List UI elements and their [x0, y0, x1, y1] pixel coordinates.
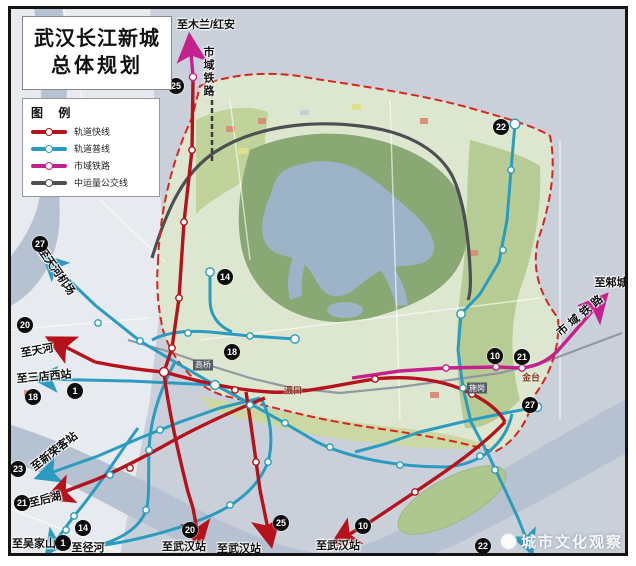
- line-badge-27: 27: [522, 397, 538, 413]
- map-label: 金台: [522, 371, 540, 384]
- line-badge-14: 14: [217, 269, 233, 285]
- map-label: 至武汉站: [162, 538, 206, 554]
- line-badge-20: 20: [17, 317, 33, 333]
- map-label: 至武汉站: [217, 540, 261, 556]
- lake-arm-3: [327, 302, 363, 318]
- line-badge-10: 10: [355, 518, 371, 534]
- map-label: 施岗: [467, 383, 487, 394]
- map-title-box: 武汉长江新城 总体规划: [22, 16, 172, 90]
- legend-item-normal: 轨道普线: [31, 142, 151, 155]
- line-badge-1: 1: [67, 383, 83, 399]
- legend-item-label: 中运量公交线: [74, 176, 128, 189]
- normal-line-swatch: [31, 147, 67, 151]
- map-label: 市域铁路: [200, 46, 216, 98]
- line-badge-20: 20: [182, 522, 198, 538]
- express-line-swatch: [31, 130, 67, 134]
- map-label: 至武汉站: [316, 537, 360, 553]
- map-label: 滠口: [284, 384, 302, 397]
- legend-item-brt: 中运量公交线: [31, 176, 151, 189]
- map-label: 至径河: [72, 539, 105, 555]
- outer-margin-bottom: [0, 556, 636, 566]
- map-label: 至木兰/红安: [177, 16, 235, 32]
- watermark-text: 城市文化观察: [521, 531, 623, 552]
- line-badge-25: 25: [273, 515, 289, 531]
- planning-map-image: 武汉长江新城 总体规划 图 例 轨道快线 轨道普线 市域铁路 中运量公交线 25…: [0, 0, 636, 566]
- line-badge-18: 18: [224, 344, 240, 360]
- legend: 图 例 轨道快线 轨道普线 市域铁路 中运量公交线: [22, 98, 160, 197]
- legend-item-express: 轨道快线: [31, 125, 151, 138]
- outer-margin-right: [628, 0, 636, 566]
- line-badge-23: 23: [10, 461, 26, 477]
- regional-rail-swatch: [31, 164, 67, 168]
- map-title-line2: 总体规划: [51, 53, 143, 80]
- line-badge-22: 22: [493, 119, 509, 135]
- legend-item-regional-rail: 市域铁路: [31, 159, 151, 172]
- watermark-logo-icon: [500, 533, 517, 550]
- line-badge-21: 21: [14, 495, 30, 511]
- watermark: 城市文化观察: [500, 531, 623, 552]
- outer-margin-top: [0, 0, 636, 6]
- brt-line-swatch: [31, 181, 67, 185]
- line-badge-1: 1: [55, 535, 71, 551]
- map-label: 至邾城: [595, 274, 628, 290]
- map-label: 高桥: [193, 360, 213, 371]
- map-title-line1: 武汉长江新城: [34, 26, 160, 53]
- legend-item-label: 市域铁路: [74, 159, 110, 172]
- map-label: 至吴家山: [12, 535, 56, 551]
- legend-item-label: 轨道普线: [74, 142, 110, 155]
- legend-item-label: 轨道快线: [74, 125, 110, 138]
- line-badge-10: 10: [487, 348, 503, 364]
- line-badge-21: 21: [514, 349, 530, 365]
- outer-margin-left: [0, 0, 8, 566]
- line-badge-18: 18: [25, 389, 41, 405]
- line-badge-22: 22: [475, 538, 491, 554]
- legend-heading: 图 例: [31, 104, 151, 121]
- line-badge-27: 27: [32, 236, 48, 252]
- line-badge-14: 14: [75, 520, 91, 536]
